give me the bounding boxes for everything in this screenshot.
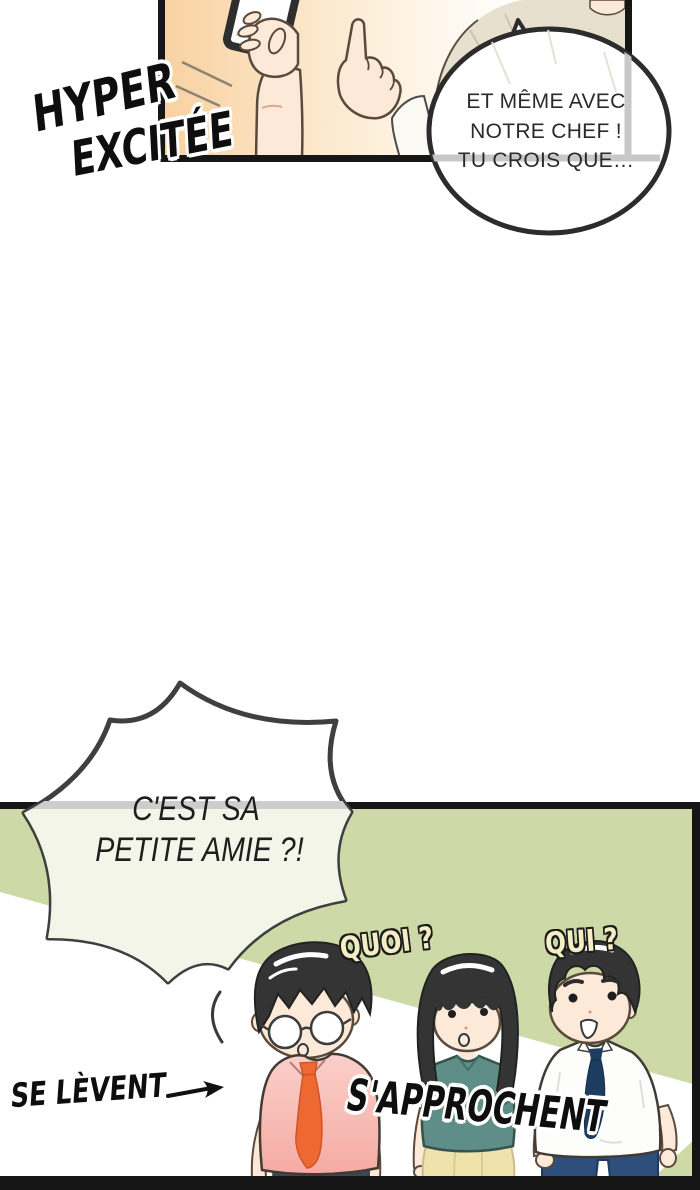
burst-bubble-text: C'EST SA PETITE AMIE ?! <box>95 789 297 871</box>
sfx-qui: QUI ? <box>544 922 619 962</box>
burst-line-2: PETITE AMIE ?! <box>95 830 297 871</box>
burst-line-1: C'EST SA <box>95 789 297 830</box>
speech-line-1: ET MÊME AVEC <box>440 87 652 117</box>
comic-page: { "colors": { "panel_green": "#cdd9a6", … <box>0 0 700 1190</box>
speech-line-2: NOTRE CHEF ! <box>440 117 652 147</box>
character-girl <box>414 954 518 1178</box>
speech-bubble-text: ET MÊME AVEC NOTRE CHEF ! TU CROIS QUE… <box>440 87 652 176</box>
speech-line-3: TU CROIS QUE… <box>440 146 652 176</box>
